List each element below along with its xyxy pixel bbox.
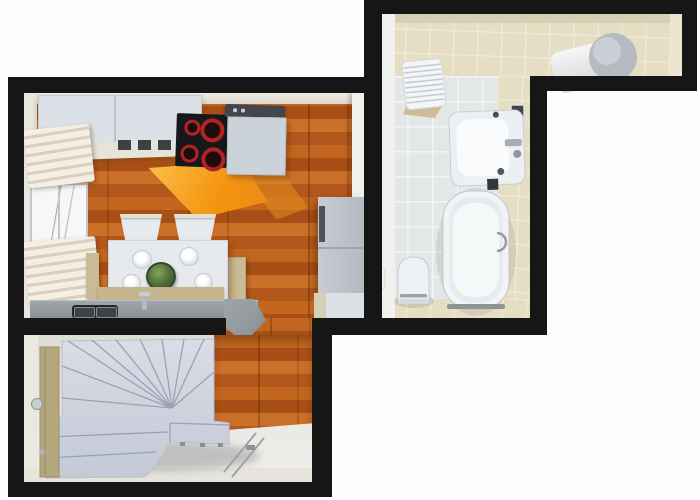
toilet (394, 257, 434, 308)
burner (180, 144, 199, 163)
entrance-door (32, 347, 60, 477)
basin-faucet (505, 139, 522, 147)
toilet-seat-line (400, 294, 427, 298)
vent-slot (138, 140, 151, 150)
wall-bath-top (364, 0, 697, 14)
bench (226, 257, 246, 305)
wall-bath-bottom (312, 318, 547, 335)
faucet-head (139, 292, 150, 296)
kitchen-sink (72, 305, 118, 318)
refrigerator (318, 197, 364, 293)
wall-stair-right (312, 318, 332, 497)
washbasin (449, 110, 526, 192)
stair-hall-fixtures (24, 335, 312, 482)
wall-left (8, 77, 24, 497)
window-mullion (58, 185, 60, 241)
vent-slot (158, 140, 171, 150)
fridge-handle (319, 206, 325, 242)
sink-bowl (96, 307, 117, 318)
sink-bowl (74, 307, 95, 318)
wall-notch-horizontal (545, 76, 697, 91)
wall-kitchen-stair (8, 318, 226, 335)
plate (179, 247, 199, 266)
stove-cooktop (175, 113, 229, 168)
bathtub (436, 188, 516, 316)
door-keyhole (39, 449, 45, 455)
soap-dish (487, 179, 498, 190)
hood-knob (241, 109, 245, 113)
towel-stack (398, 58, 448, 121)
kitchen-faucet (142, 295, 147, 310)
wall-notch-vertical (530, 76, 547, 335)
roman-blind-upper (23, 124, 95, 189)
burner (200, 118, 225, 143)
hood-knob (233, 108, 237, 112)
burner (184, 119, 201, 136)
vent-slot (118, 140, 131, 150)
door-handle (32, 399, 43, 410)
kitchen-cabinet (226, 116, 286, 175)
bench-front (98, 287, 224, 301)
wall-kitchen-bath-divider (364, 0, 382, 335)
wall-kitchen-top (8, 77, 380, 93)
fridge-divider (318, 247, 364, 249)
floorplan-render (0, 0, 700, 500)
cabinet-door-divider (114, 96, 116, 144)
wall-stair-bottom (8, 482, 332, 497)
